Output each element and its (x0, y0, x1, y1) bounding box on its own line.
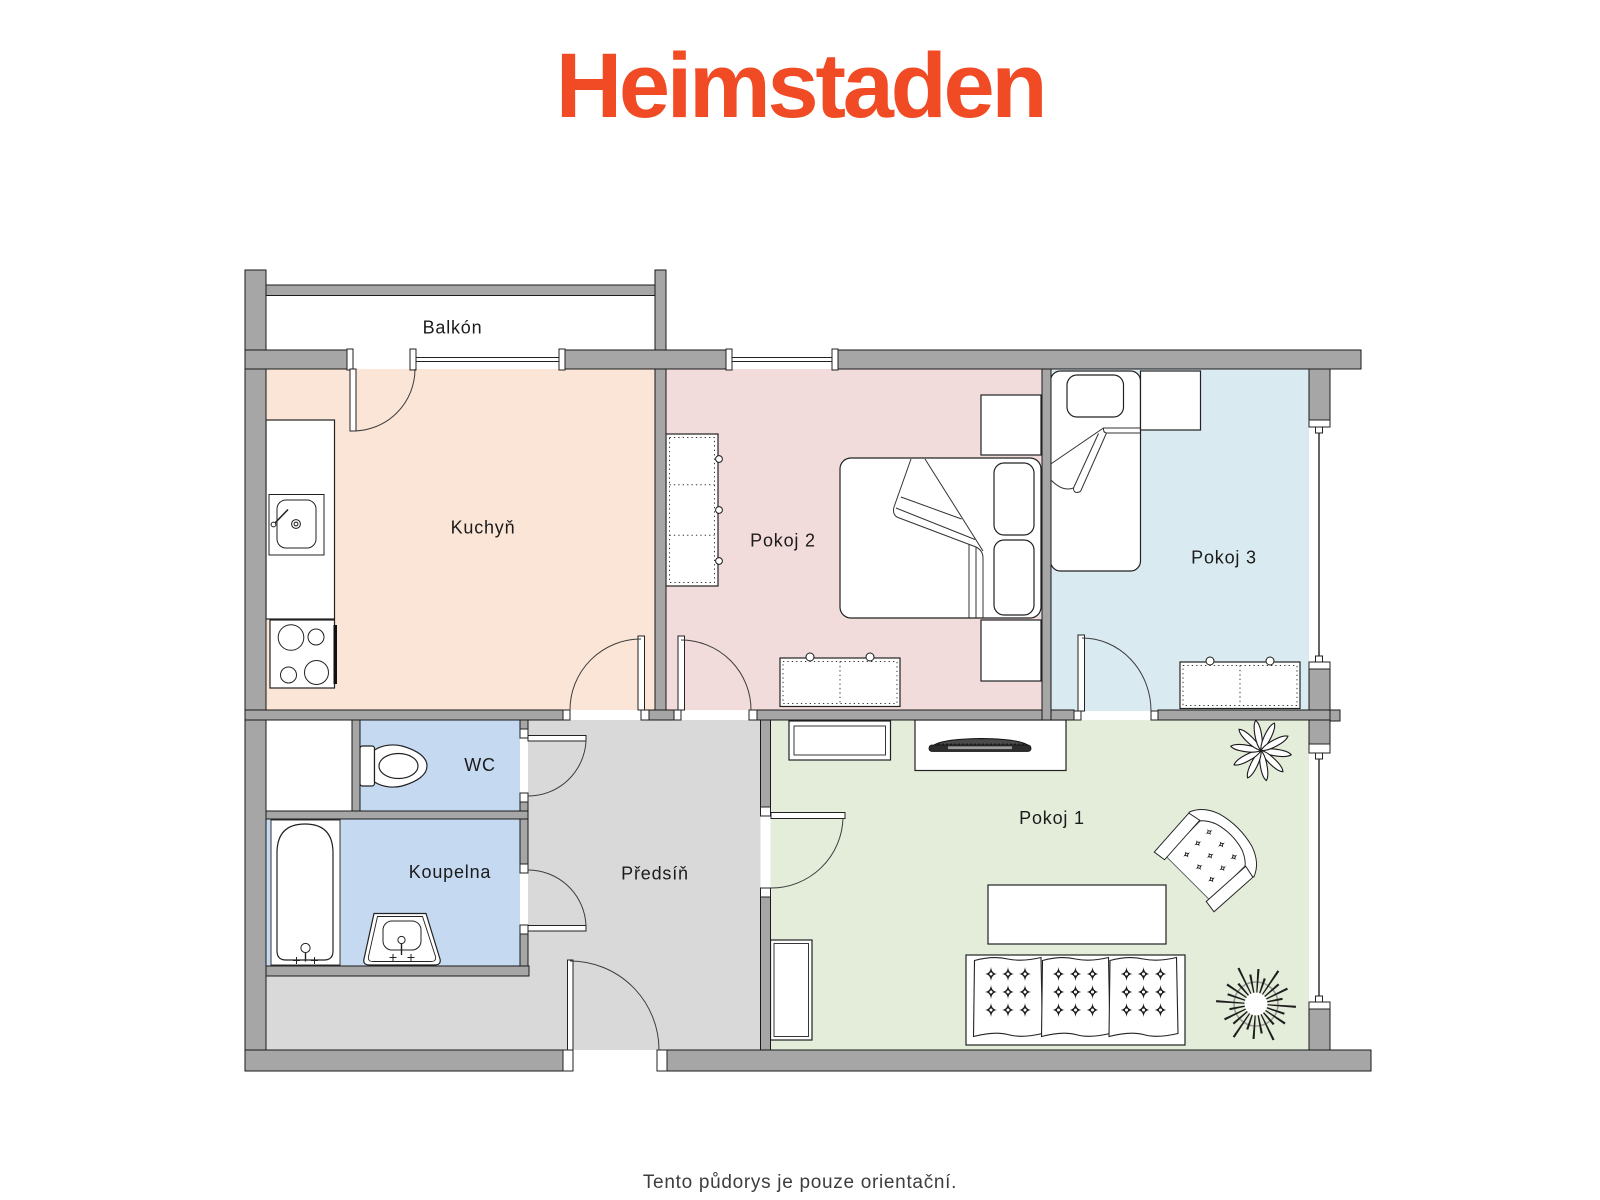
svg-text:Pokoj 2: Pokoj 2 (750, 531, 816, 551)
svg-text:Kuchyň: Kuchyň (451, 518, 516, 538)
svg-text:Koupelna: Koupelna (409, 862, 492, 882)
svg-text:Předsíň: Předsíň (621, 864, 689, 884)
svg-text:WC: WC (464, 755, 496, 775)
svg-text:Pokoj 1: Pokoj 1 (1019, 808, 1085, 828)
svg-text:Balkón: Balkón (423, 318, 483, 338)
svg-text:Pokoj 3: Pokoj 3 (1191, 548, 1257, 568)
